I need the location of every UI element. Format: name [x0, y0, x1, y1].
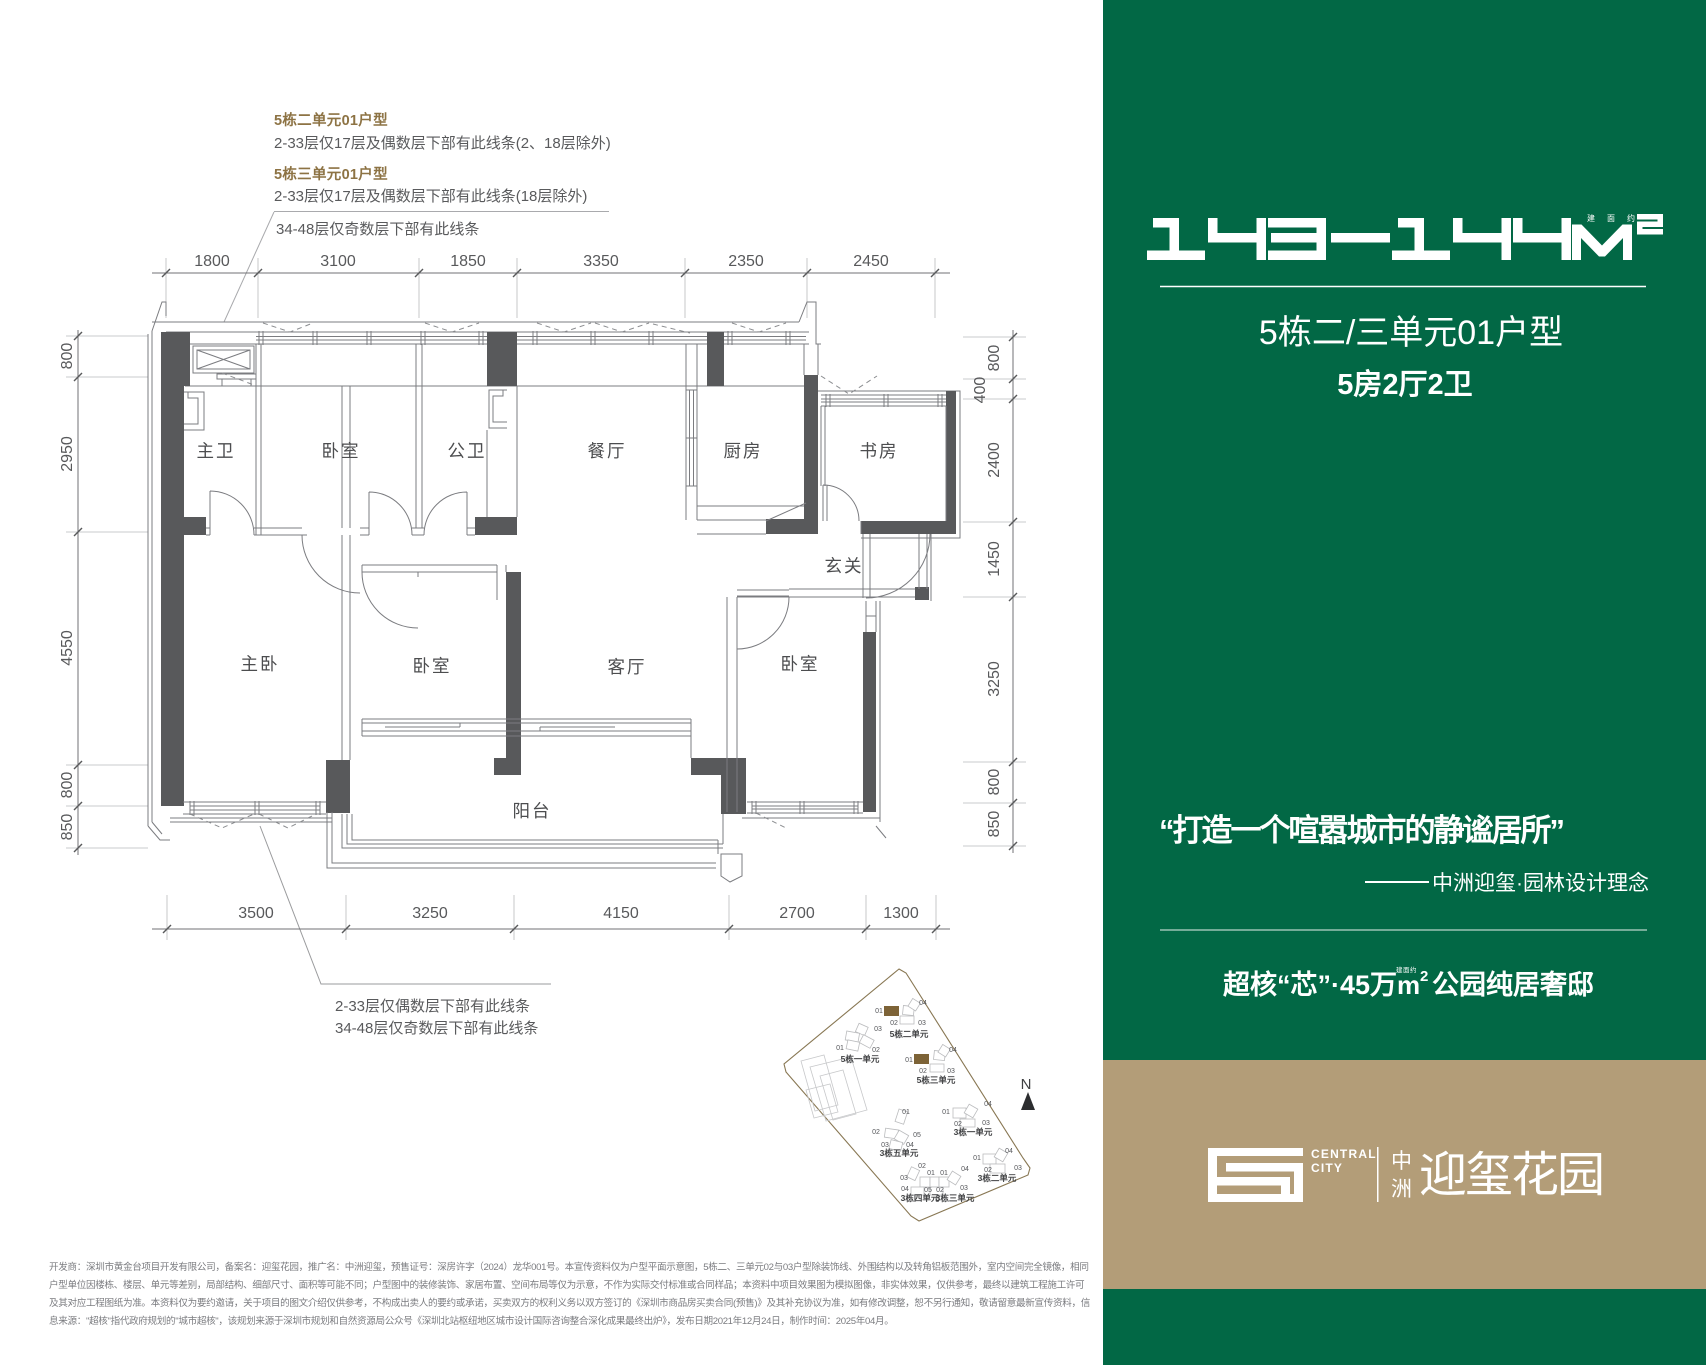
svg-text:01: 01: [927, 1170, 935, 1177]
svg-text:3250: 3250: [412, 905, 448, 922]
svg-text:03: 03: [947, 1068, 955, 1075]
svg-text:2400: 2400: [986, 442, 1003, 478]
svg-text:2950: 2950: [59, 436, 76, 472]
svg-text:01: 01: [942, 1109, 950, 1116]
svg-text:02: 02: [919, 1068, 927, 1075]
svg-text:800: 800: [59, 343, 76, 370]
svg-text:玄关: 玄关: [825, 556, 864, 576]
svg-text:02: 02: [872, 1047, 880, 1054]
svg-text:1300: 1300: [883, 905, 919, 922]
svg-text:01: 01: [836, 1045, 844, 1052]
svg-text:03: 03: [982, 1120, 990, 1127]
svg-text:02: 02: [890, 1020, 898, 1027]
svg-text:中洲迎玺·园林设计理念: 中洲迎玺·园林设计理念: [1432, 872, 1649, 895]
svg-text:03: 03: [900, 1175, 908, 1182]
svg-text:850: 850: [59, 814, 76, 841]
svg-text:01: 01: [905, 1057, 913, 1064]
svg-text:阳台: 阳台: [513, 801, 552, 821]
svg-text:公园纯居奢邸: 公园纯居奢邸: [1432, 969, 1594, 1000]
svg-text:04: 04: [984, 1101, 992, 1108]
svg-text:800: 800: [986, 769, 1003, 796]
svg-text:34-48层仅奇数层下部有此线条: 34-48层仅奇数层下部有此线条: [335, 1020, 538, 1037]
svg-text:“打造一个喧嚣城市的静谧居所”: “打造一个喧嚣城市的静谧居所”: [1159, 813, 1563, 848]
svg-text:3栋五单元: 3栋五单元: [880, 1148, 919, 1158]
svg-text:1850: 1850: [450, 253, 486, 270]
svg-text:1450: 1450: [986, 541, 1003, 577]
svg-text:3250: 3250: [986, 661, 1003, 697]
svg-text:客厅: 客厅: [608, 657, 647, 677]
svg-text:2700: 2700: [779, 905, 815, 922]
svg-text:建面约: 建面约: [1587, 213, 1647, 223]
svg-text:公卫: 公卫: [448, 441, 487, 461]
svg-text:03: 03: [1014, 1165, 1022, 1172]
svg-text:书房: 书房: [860, 441, 899, 461]
svg-text:4150: 4150: [603, 905, 639, 922]
svg-text:04: 04: [1005, 1148, 1013, 1155]
svg-text:5房2厅2卫: 5房2厅2卫: [1337, 368, 1472, 401]
svg-text:超核“芯”·45万: 超核“芯”·45万: [1223, 969, 1397, 1000]
svg-text:1800: 1800: [194, 253, 230, 270]
svg-text:2-33层仅17层及偶数层下部有此线条(2、18层除外): 2-33层仅17层及偶数层下部有此线条(2、18层除外): [274, 135, 611, 152]
svg-text:5栋二/三单元01户型: 5栋二/三单元01户型: [1259, 314, 1563, 352]
svg-text:2: 2: [1420, 968, 1428, 985]
svg-text:卧室: 卧室: [781, 654, 820, 674]
svg-text:01: 01: [902, 1109, 910, 1116]
svg-text:5栋二单元: 5栋二单元: [890, 1029, 929, 1039]
svg-text:4550: 4550: [59, 630, 76, 666]
svg-text:3500: 3500: [238, 905, 274, 922]
svg-text:04: 04: [949, 1047, 957, 1054]
svg-text:3350: 3350: [583, 253, 619, 270]
svg-text:厨房: 厨房: [724, 441, 763, 461]
svg-text:05: 05: [913, 1132, 921, 1139]
svg-text:04: 04: [919, 1000, 927, 1007]
svg-text:中: 中: [1391, 1150, 1412, 1173]
svg-text:400: 400: [972, 377, 989, 404]
svg-text:洲: 洲: [1391, 1178, 1412, 1201]
svg-text:卧室: 卧室: [322, 441, 361, 461]
svg-text:5栋二单元01户型: 5栋二单元01户型: [274, 111, 388, 129]
svg-text:04: 04: [901, 1186, 909, 1193]
svg-text:3栋三单元: 3栋三单元: [936, 1193, 975, 1203]
svg-text:5栋三单元: 5栋三单元: [917, 1075, 956, 1085]
svg-text:01: 01: [875, 1008, 883, 1015]
svg-text:03: 03: [960, 1185, 968, 1192]
svg-text:800: 800: [59, 772, 76, 799]
svg-text:2-33层仅17层及偶数层下部有此线条(18层除外): 2-33层仅17层及偶数层下部有此线条(18层除外): [274, 188, 587, 205]
svg-text:01: 01: [973, 1155, 981, 1162]
svg-text:主卫: 主卫: [197, 441, 236, 461]
svg-text:01: 01: [940, 1170, 948, 1177]
svg-text:3100: 3100: [320, 253, 356, 270]
svg-text:建面约: 建面约: [1396, 965, 1417, 974]
svg-text:3栋四单元: 3栋四单元: [901, 1193, 940, 1203]
svg-text:800: 800: [986, 345, 1003, 372]
svg-text:5栋三单元01户型: 5栋三单元01户型: [274, 165, 388, 183]
svg-text:2-33层仅偶数层下部有此线条: 2-33层仅偶数层下部有此线条: [335, 998, 530, 1015]
svg-text:m: m: [1397, 970, 1420, 1000]
svg-text:卧室: 卧室: [413, 656, 452, 676]
svg-text:CITY: CITY: [1311, 1161, 1343, 1175]
svg-text:02: 02: [918, 1163, 926, 1170]
svg-text:2450: 2450: [853, 253, 889, 270]
svg-text:2350: 2350: [728, 253, 764, 270]
svg-text:迎玺花园: 迎玺花园: [1419, 1149, 1603, 1202]
svg-text:5栋一单元: 5栋一单元: [841, 1054, 880, 1064]
svg-text:3栋一单元: 3栋一单元: [954, 1127, 993, 1137]
svg-text:N: N: [1021, 1076, 1032, 1093]
svg-text:34-48层仅奇数层下部有此线条: 34-48层仅奇数层下部有此线条: [276, 221, 479, 238]
svg-text:02: 02: [872, 1129, 880, 1136]
svg-text:主卧: 主卧: [241, 654, 280, 674]
svg-text:餐厅: 餐厅: [588, 441, 627, 461]
svg-text:03: 03: [874, 1026, 882, 1033]
svg-text:04: 04: [961, 1166, 969, 1173]
svg-text:3栋二单元: 3栋二单元: [978, 1173, 1017, 1183]
svg-text:03: 03: [918, 1020, 926, 1027]
svg-text:850: 850: [986, 811, 1003, 838]
svg-text:CENTRAL: CENTRAL: [1311, 1147, 1377, 1161]
